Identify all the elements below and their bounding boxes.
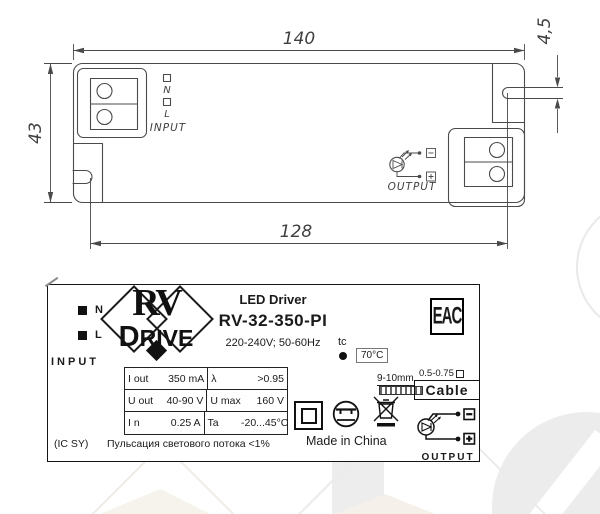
table-row: U out 40-90 V U max 160 V — [125, 390, 287, 412]
l-square-icon — [78, 331, 87, 340]
spec-table: I out 350 mA λ >0.95 U out 40-90 V U max… — [124, 367, 288, 435]
made-in-text: Made in China — [306, 434, 387, 448]
label-minus-terminal-icon — [464, 409, 475, 420]
page: { "drawing": { "dims": { "length": "140"… — [0, 0, 600, 514]
mount-slot-left — [73, 171, 92, 184]
drawing-input-label: INPUT — [150, 122, 187, 134]
dimension-mounting: 128 — [91, 93, 508, 249]
tc-dot-icon — [339, 352, 347, 360]
strip-length: 9-10mm — [377, 373, 414, 386]
drawing-l-label: L — [164, 109, 170, 120]
product-model: RV-32-350-PI — [200, 311, 346, 331]
drawing-output-label: OUTPUT — [388, 181, 437, 193]
label-plus-terminal-icon — [464, 434, 475, 445]
eac-mark-icon: EAC — [430, 298, 464, 335]
svg-text:4,5: 4,5 — [535, 17, 555, 44]
technical-drawing: N L INPUT — [0, 0, 600, 272]
input-terminal-block — [78, 69, 147, 138]
dimension-height: 43 — [26, 64, 72, 203]
label-n: N — [95, 304, 103, 316]
rv-drive-logo: RV DRIVE — [106, 287, 206, 365]
label-output-word: OUTPUT — [416, 452, 480, 463]
drawing-n-label: N — [163, 85, 171, 96]
label-l: L — [95, 329, 102, 341]
dimension-slot: 4,5 — [535, 17, 560, 133]
svg-text:128: 128 — [280, 222, 313, 242]
thermal-protection-icon — [331, 399, 361, 429]
product-label: N L INPUT RV DRIVE LED Driver RV-32-350-… — [47, 284, 480, 462]
footnote-prefix: (IC SY) — [54, 438, 88, 450]
minus-terminal-icon — [427, 149, 436, 158]
label-l-row: L — [78, 329, 102, 341]
product-type: LED Driver — [200, 292, 346, 307]
tc-label: tc — [338, 336, 347, 348]
table-row: I n 0.25 A Ta -20...45°C — [125, 412, 287, 433]
input-nl-indicators: N L INPUT — [150, 75, 187, 135]
enclosure-outline — [74, 64, 525, 203]
table-row: I out 350 mA λ >0.95 — [125, 368, 287, 390]
weee-bin-icon — [372, 393, 400, 429]
footnote-text: Пульсация светового потока <1% — [107, 438, 270, 450]
logo-rv-text: RV — [106, 281, 206, 325]
plus-terminal-icon — [427, 172, 436, 181]
product-rating: 220-240V; 50-60Hz — [200, 337, 346, 349]
led-wiring-symbol: OUTPUT — [388, 149, 437, 194]
wire-gauge-square-icon — [456, 370, 464, 378]
class2-insulation-icon — [294, 401, 323, 430]
cable-label: Cable — [414, 380, 480, 400]
mount-slot-right — [503, 88, 563, 99]
svg-text:43: 43 — [26, 122, 46, 144]
logo-drive-text: DRIVE — [106, 321, 206, 354]
output-terminal-block — [449, 129, 525, 207]
label-input-word: INPUT — [51, 356, 99, 368]
svg-text:140: 140 — [283, 29, 315, 49]
label-led-output-icon — [412, 405, 476, 447]
label-n-row: N — [78, 304, 103, 316]
dimension-length: 140 — [74, 29, 525, 60]
product-block: LED Driver RV-32-350-PI 220-240V; 50-60H… — [200, 292, 346, 349]
n-square-icon — [78, 306, 87, 315]
tc-value: 70°C — [356, 348, 388, 363]
